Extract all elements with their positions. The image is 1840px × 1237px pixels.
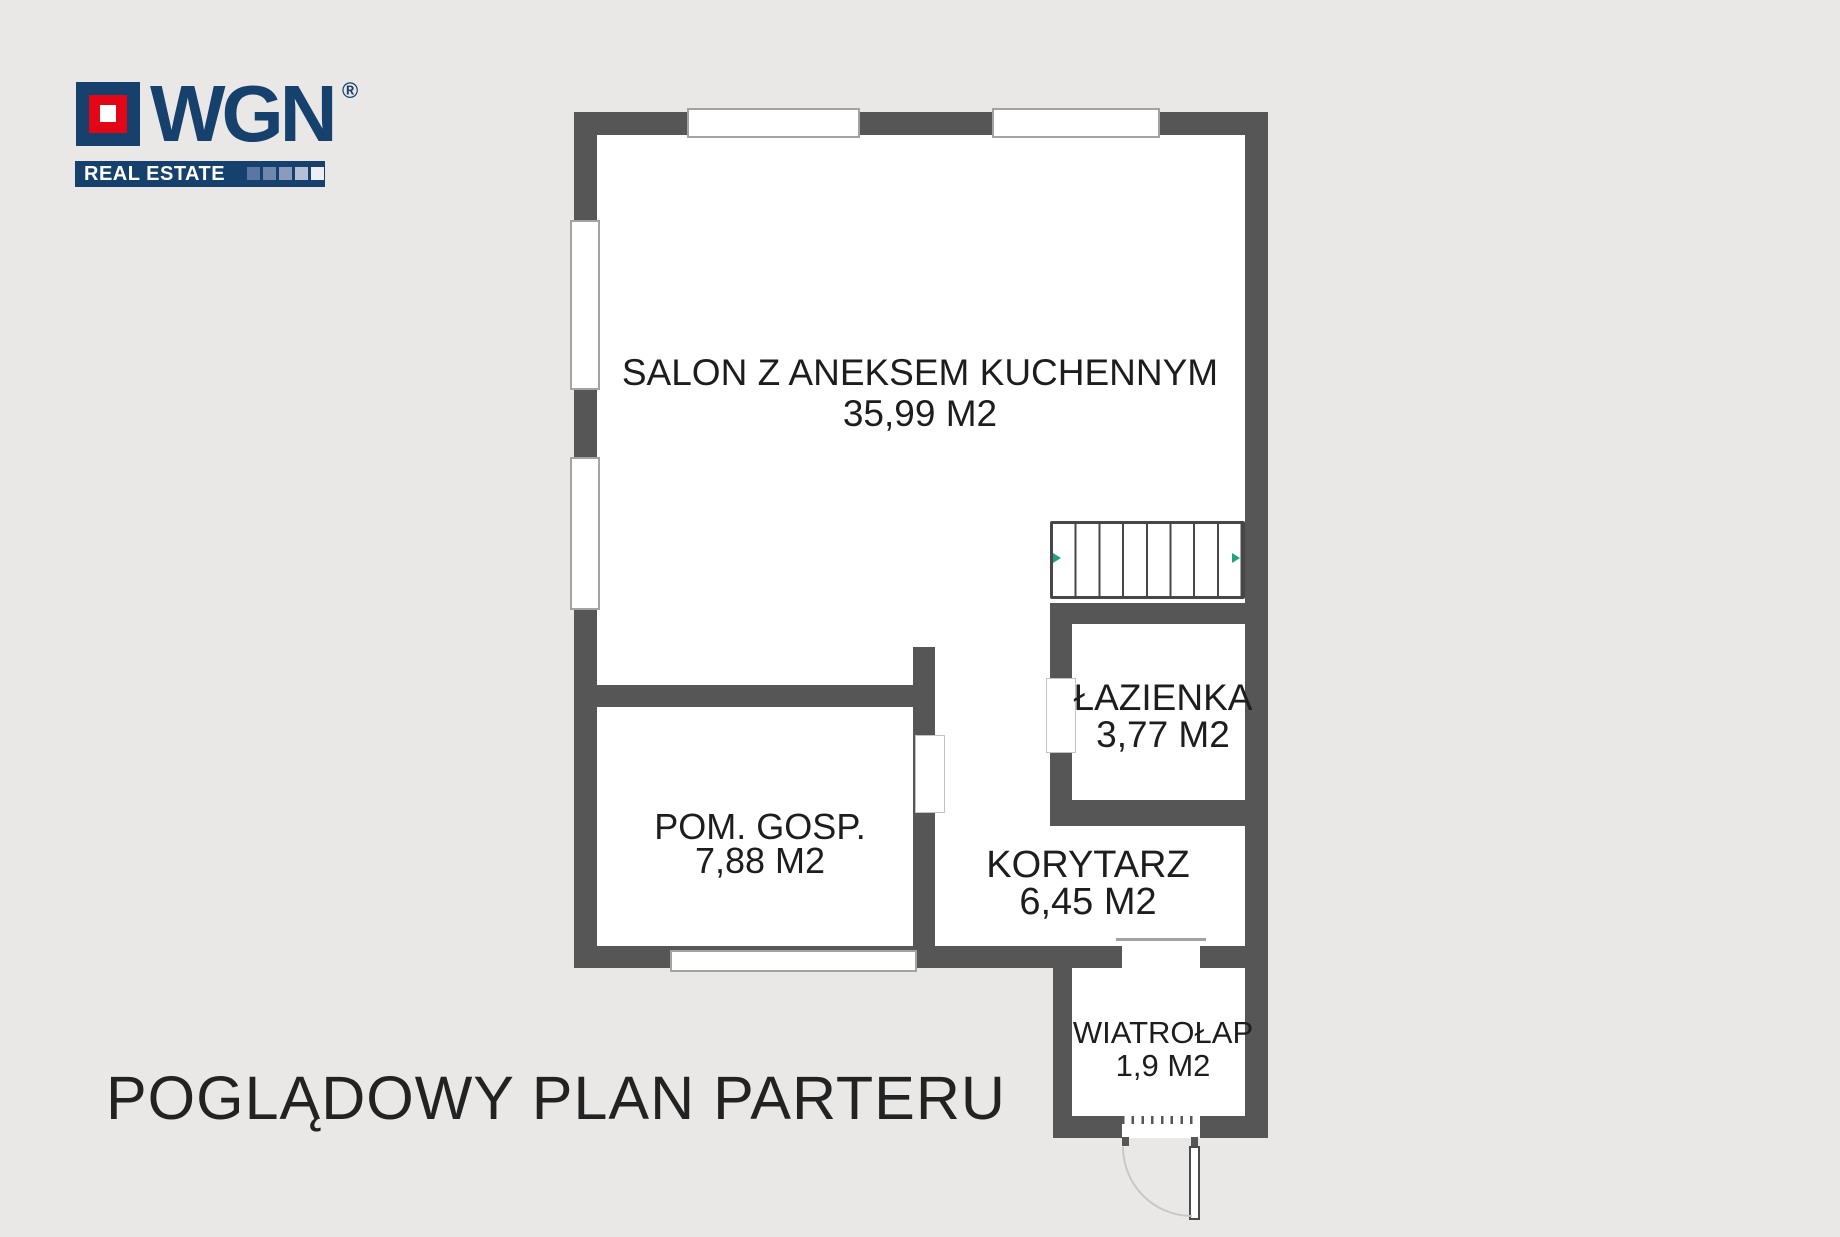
- stairs: [1050, 521, 1245, 599]
- room-name: SALON Z ANEKSEM KUCHENNYM: [570, 352, 1270, 393]
- room-label-lazienka: ŁAZIENKA 3,77 M2: [1013, 679, 1313, 753]
- plan-caption: POGLĄDOWY PLAN PARTERU: [106, 1063, 1006, 1133]
- exterior-wall-top: [574, 112, 1268, 135]
- door-frame-line: [1116, 938, 1206, 941]
- banner-gradient-square: [311, 167, 324, 180]
- door-sill-ticks: [1122, 1116, 1200, 1124]
- room-name: POM. GOSP.: [610, 810, 910, 844]
- room-label-wiatrolap: WIATROŁAP 1,9 M2: [1013, 1016, 1313, 1082]
- room-label-pom-gosp: POM. GOSP. 7,88 M2: [610, 810, 910, 878]
- window: [992, 108, 1160, 138]
- room-area: 35,99 M2: [570, 393, 1270, 434]
- floor-plan-page: WGN ® REAL ESTATE: [0, 0, 1840, 1237]
- room-area: 3,77 M2: [1013, 716, 1313, 753]
- banner-gradient-square: [263, 167, 276, 180]
- registered-trademark-icon: ®: [342, 78, 358, 104]
- door-opening-pom-gosp: [915, 735, 945, 813]
- room-area: 1,9 M2: [1013, 1049, 1313, 1082]
- room-name: ŁAZIENKA: [1013, 679, 1313, 716]
- room-label-salon: SALON Z ANEKSEM KUCHENNYM 35,99 M2: [570, 352, 1270, 434]
- room-name: KORYTARZ: [938, 847, 1238, 884]
- wiatrolap-wall-bottom: [1053, 1116, 1122, 1138]
- wgn-logo-mark: [76, 82, 140, 146]
- room-area: 6,45 M2: [938, 884, 1238, 921]
- bathroom-wall-top: [1050, 603, 1245, 624]
- door-opening-wiatrolap: [1122, 946, 1200, 968]
- wgn-logo-red-square: [89, 95, 127, 133]
- room-area: 7,88 M2: [610, 844, 910, 878]
- banner-gradient-square: [247, 167, 260, 180]
- exterior-wall-right: [1245, 112, 1268, 1138]
- window: [670, 950, 917, 972]
- door-jamb: [1191, 1137, 1198, 1146]
- banner-gradient-square: [295, 167, 308, 180]
- room-name: WIATROŁAP: [1013, 1016, 1313, 1049]
- stairs-direction-arrow-icon: [1053, 553, 1061, 563]
- wgn-brand-text: WGN: [150, 76, 334, 152]
- door-jamb: [1122, 1137, 1129, 1146]
- stairs-direction-arrow-icon: [1232, 553, 1240, 563]
- room-label-korytarz: KORYTARZ 6,45 M2: [938, 847, 1238, 921]
- window: [687, 108, 860, 138]
- wgn-logo-white-square: [100, 105, 116, 122]
- wiatrolap-wall-bottom: [1200, 1116, 1268, 1138]
- exterior-wall-bottom: [1200, 946, 1268, 968]
- bathroom-wall-bottom: [1050, 800, 1245, 826]
- banner-gradient-square: [279, 167, 292, 180]
- window: [570, 457, 600, 610]
- wgn-banner-text: REAL ESTATE: [84, 161, 225, 188]
- door-swing-arc: [1122, 1147, 1192, 1217]
- partition-wall-horizontal: [597, 685, 913, 707]
